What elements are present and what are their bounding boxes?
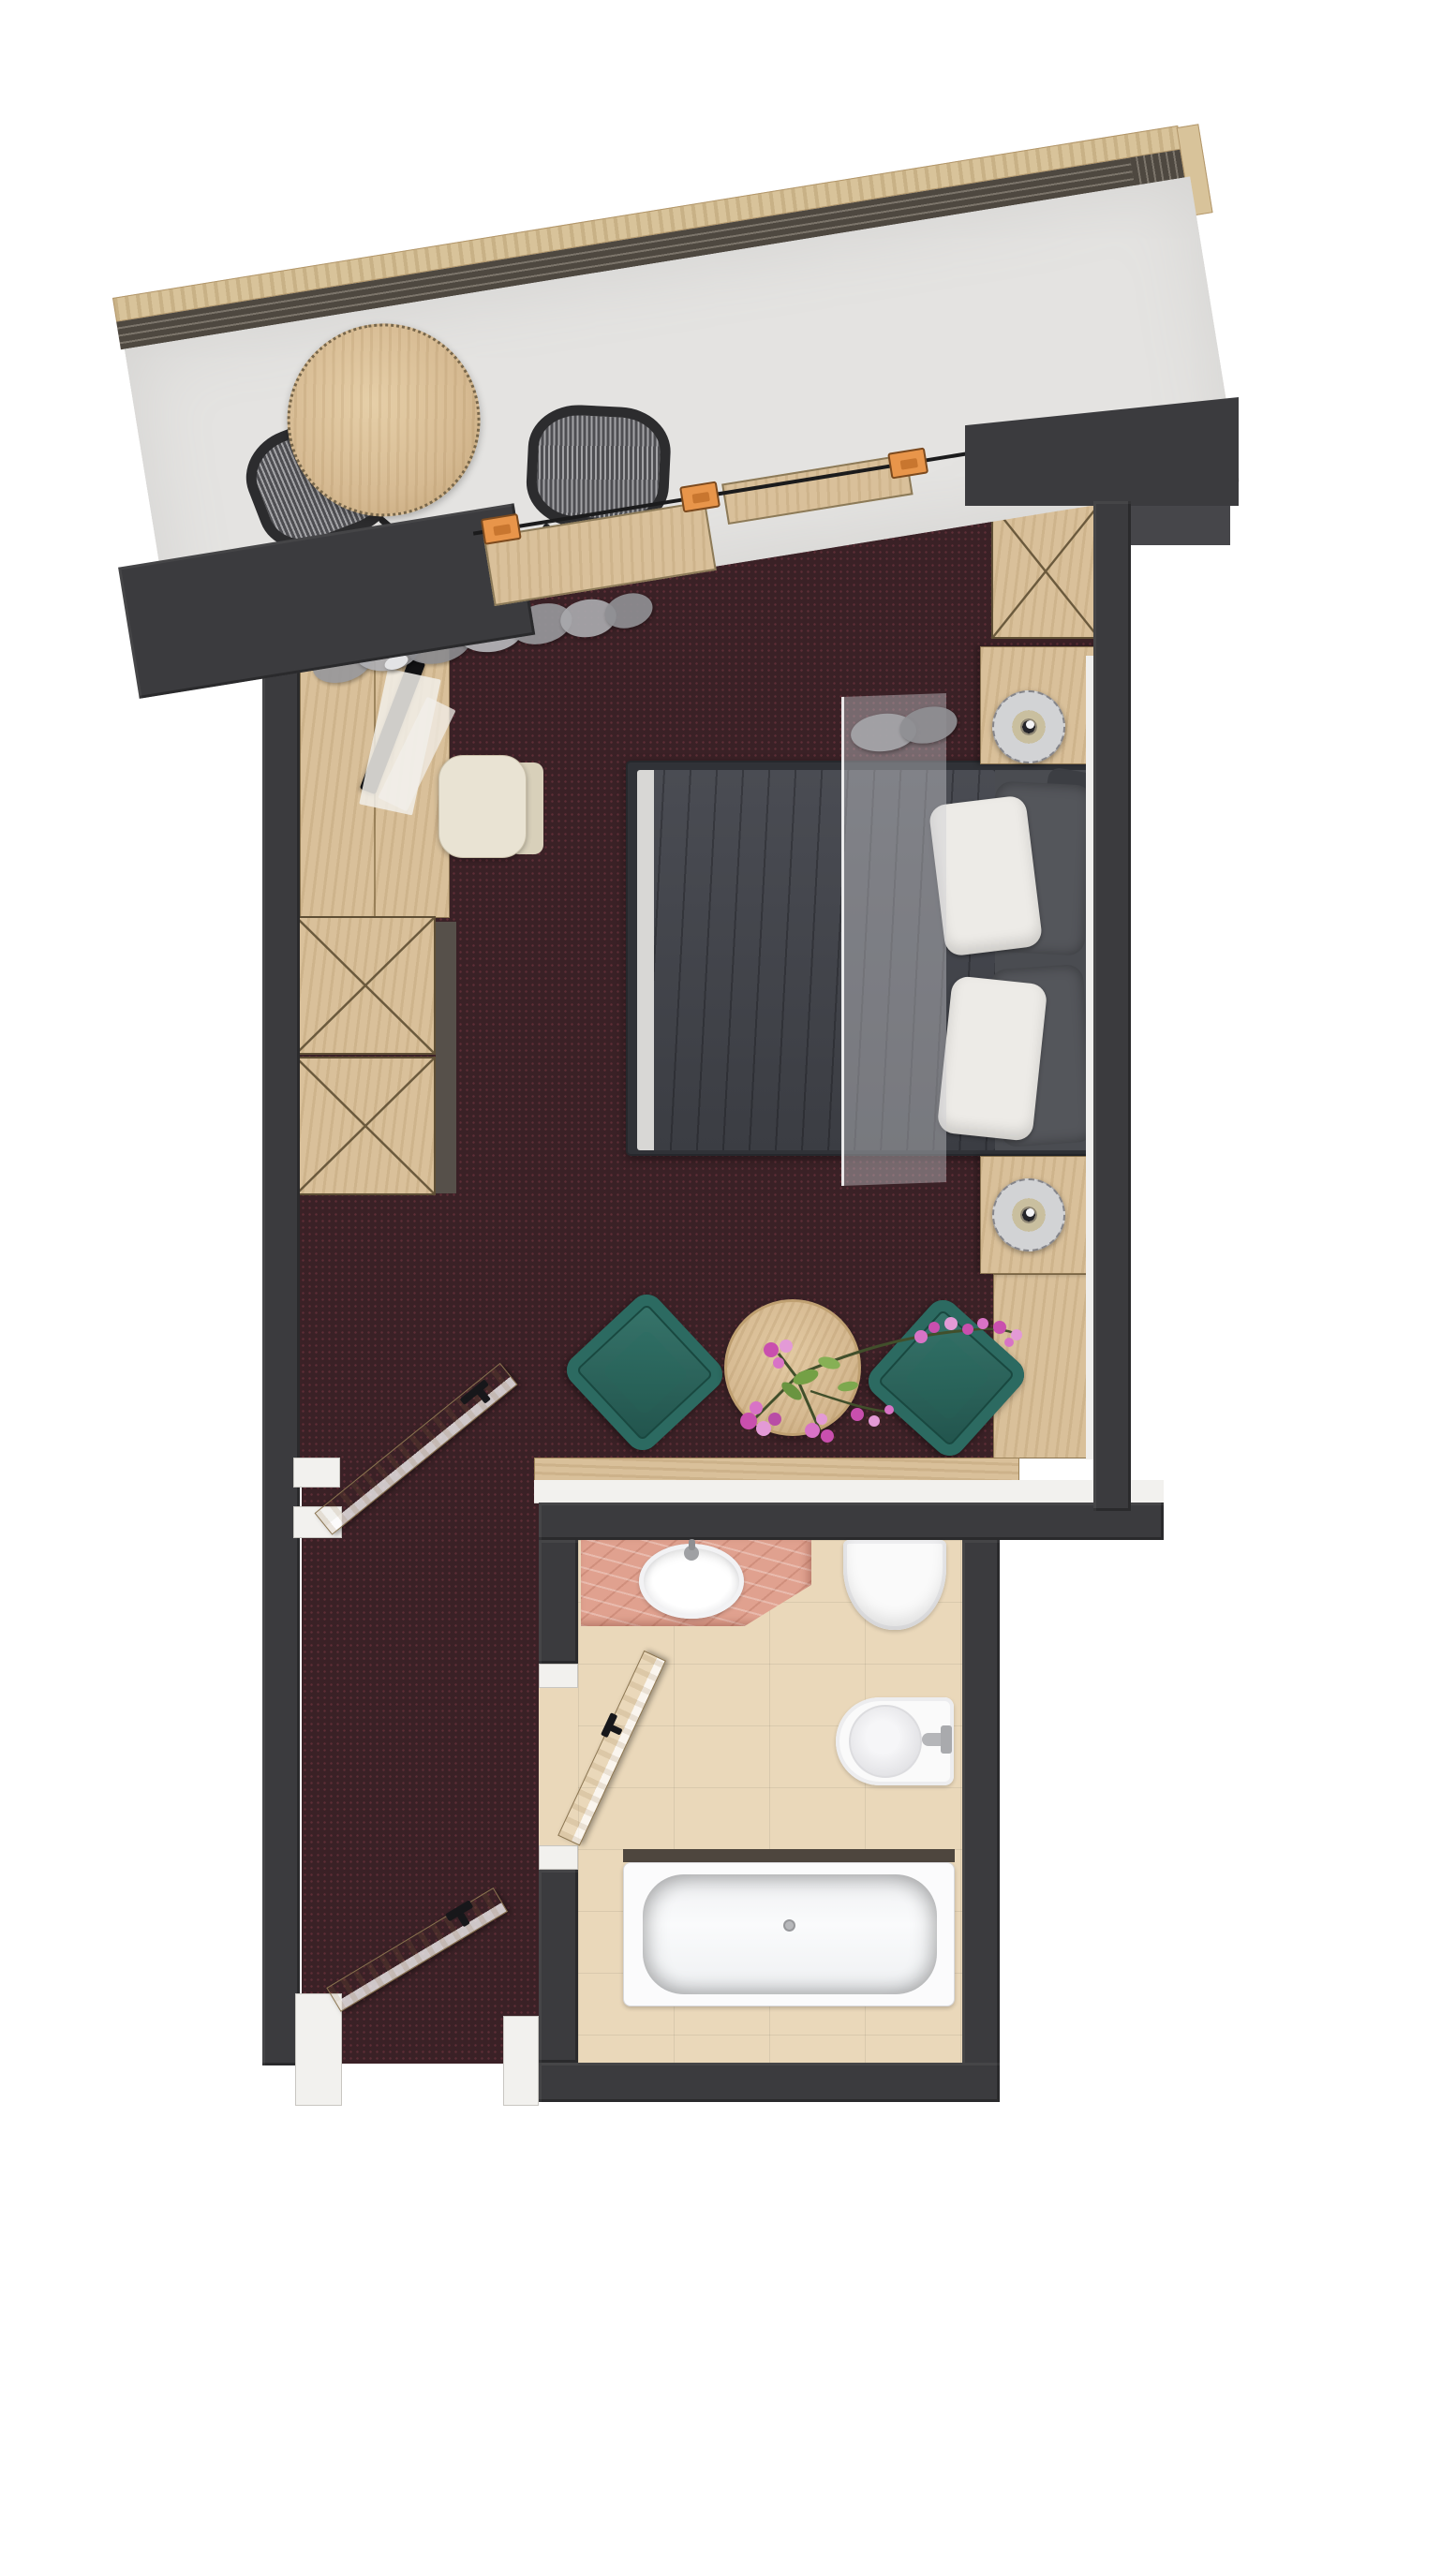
floor-plan bbox=[0, 0, 1441, 2576]
wall-trim bbox=[534, 1480, 1164, 1503]
pillow bbox=[936, 975, 1047, 1142]
bathtub-drain bbox=[783, 1919, 795, 1932]
sheet-edge bbox=[637, 770, 654, 1150]
bathroom-east-wall bbox=[962, 1540, 1000, 2102]
door-handle-icon bbox=[476, 1388, 491, 1404]
bathroom-south-wall bbox=[539, 2063, 1000, 2102]
cross-icon bbox=[297, 1059, 434, 1193]
bathtub bbox=[623, 1862, 955, 2006]
east-wall bbox=[1093, 501, 1131, 1511]
lamp-highlight bbox=[1026, 720, 1034, 729]
wardrobe-unit bbox=[295, 1057, 436, 1195]
desk-chair bbox=[438, 755, 527, 858]
sink bbox=[639, 1544, 744, 1619]
west-wall bbox=[262, 656, 300, 2065]
bathroom-door-jamb bbox=[539, 1845, 578, 1870]
faucet-spout bbox=[689, 1539, 695, 1550]
sheer-curtain-drape bbox=[841, 693, 946, 1186]
bidet-mount bbox=[941, 1725, 952, 1754]
cross-icon bbox=[297, 918, 434, 1053]
door-handle-icon bbox=[610, 1725, 623, 1735]
bedroom-south-wall bbox=[539, 1503, 1164, 1540]
wardrobe-shadow bbox=[436, 922, 456, 1193]
entry-door-jamb bbox=[503, 2016, 539, 2106]
entry-door-jamb bbox=[295, 1993, 342, 2106]
door-jamb bbox=[293, 1458, 340, 1488]
hinge-notch bbox=[493, 524, 511, 536]
flower-arrangement bbox=[689, 1288, 1045, 1475]
hinge-notch bbox=[692, 492, 710, 504]
bathroom-west-wall bbox=[539, 1540, 578, 1664]
door-handle-icon bbox=[457, 1912, 470, 1927]
table-lamp bbox=[992, 690, 1065, 763]
lamp-highlight bbox=[1026, 1208, 1034, 1217]
corridor-carpet bbox=[302, 1458, 539, 2064]
wardrobe-unit bbox=[295, 916, 436, 1055]
bathtub-ledge bbox=[623, 1849, 955, 1862]
bathroom-west-wall bbox=[539, 1870, 578, 2063]
bathroom-door-jamb bbox=[539, 1664, 578, 1688]
table-lamp bbox=[992, 1178, 1065, 1251]
bathtub-basin bbox=[643, 1874, 937, 1994]
bidet bbox=[836, 1697, 954, 1785]
hinge-notch bbox=[900, 458, 918, 470]
bidet-bowl bbox=[849, 1705, 922, 1778]
